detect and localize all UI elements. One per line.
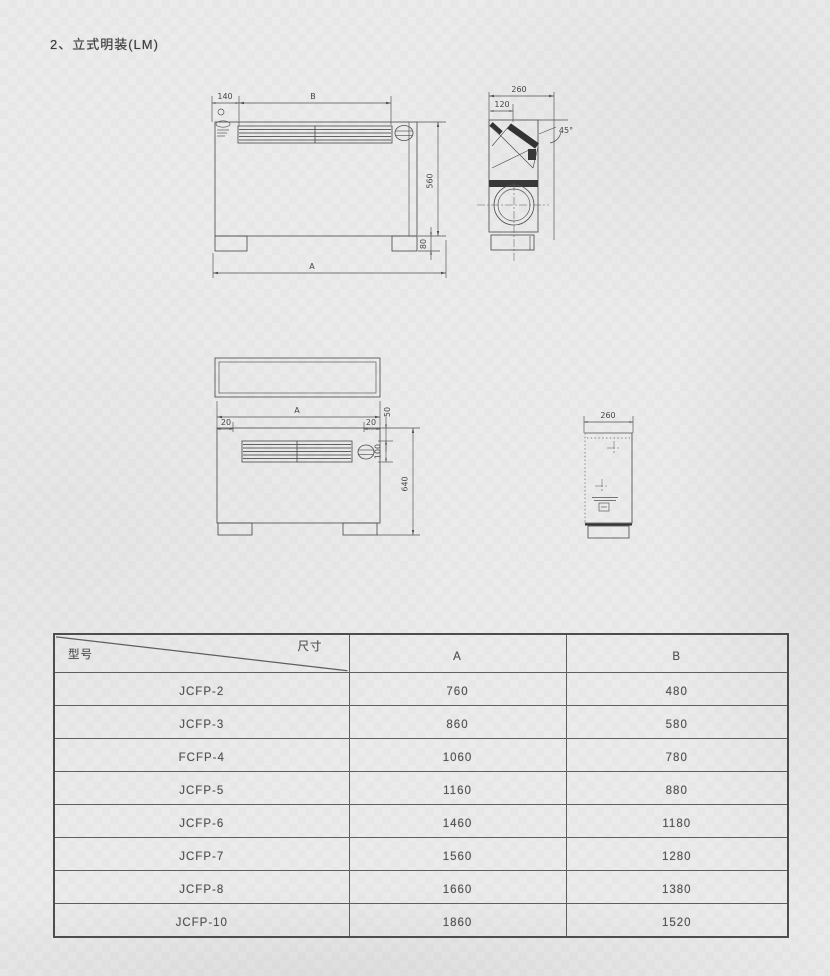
model-cell: JCFP-2 bbox=[54, 673, 349, 706]
dim-b-cell: 880 bbox=[566, 771, 788, 804]
air-outlet-grille bbox=[238, 126, 392, 143]
heat-exchanger-coil bbox=[491, 124, 538, 168]
header-col-b: B bbox=[566, 634, 788, 673]
dim-bottom: A bbox=[213, 240, 446, 278]
dim-width-lower: A 20 20 bbox=[217, 401, 380, 432]
dim-right: 560 80 bbox=[417, 122, 446, 260]
dim-a-cell: 760 bbox=[349, 673, 566, 706]
dim-right-lower: 50 100 640 bbox=[374, 407, 421, 535]
dim-a-cell: 1060 bbox=[349, 738, 566, 771]
side-foot-lower bbox=[588, 526, 629, 538]
table-row: JCFP-2 760 480 bbox=[54, 673, 788, 706]
model-cell: JCFP-3 bbox=[54, 705, 349, 738]
front-view-lower-drawing: A 20 20 bbox=[215, 358, 420, 535]
dim-a-cell: 1660 bbox=[349, 870, 566, 903]
header-col-a: A bbox=[349, 634, 566, 673]
dim-top: 140 B bbox=[212, 92, 391, 126]
dim-b-cell: 480 bbox=[566, 673, 788, 706]
table-row: FCFP-4 1060 780 bbox=[54, 738, 788, 771]
dim-b-cell: 580 bbox=[566, 705, 788, 738]
dim-label-80: 80 bbox=[419, 239, 428, 249]
table-row: JCFP-3 860 580 bbox=[54, 705, 788, 738]
left-foot-lower bbox=[218, 523, 252, 535]
dim-label-B: B bbox=[310, 92, 316, 101]
dim-b-cell: 780 bbox=[566, 738, 788, 771]
table-header-row: 尺寸 型号 A B bbox=[54, 634, 788, 673]
fan-deck bbox=[489, 180, 538, 187]
model-cell: JCFP-5 bbox=[54, 771, 349, 804]
header-model-label: 型号 bbox=[68, 646, 93, 662]
dim-label-20-left: 20 bbox=[221, 418, 231, 427]
dim-label-640: 640 bbox=[401, 476, 410, 491]
dim-label-100: 100 bbox=[374, 444, 383, 459]
table-row: JCFP-5 1160 880 bbox=[54, 771, 788, 804]
nameplate-detail bbox=[216, 109, 230, 136]
header-model-size-cell: 尺寸 型号 bbox=[54, 634, 349, 673]
table-row: JCFP-8 1660 1380 bbox=[54, 870, 788, 903]
dim-b-cell: 1520 bbox=[566, 903, 788, 937]
left-foot bbox=[215, 236, 247, 251]
control-knob-lower bbox=[358, 445, 374, 459]
side-foot bbox=[491, 235, 534, 250]
pipe-connection-marks bbox=[592, 441, 621, 511]
dim-label-A2: A bbox=[294, 406, 300, 415]
dim-label-260: 260 bbox=[511, 85, 526, 94]
header-size-label: 尺寸 bbox=[298, 638, 323, 654]
model-cell: FCFP-4 bbox=[54, 738, 349, 771]
plan-view bbox=[215, 358, 380, 397]
dim-a-cell: 1460 bbox=[349, 804, 566, 837]
model-cell: JCFP-6 bbox=[54, 804, 349, 837]
dim-side-lower: 260 bbox=[584, 411, 633, 433]
right-foot bbox=[392, 236, 417, 251]
dim-label-560: 560 bbox=[426, 173, 435, 188]
unit-body-lower bbox=[217, 428, 380, 523]
dim-side-top: 260 120 45° bbox=[489, 85, 573, 240]
model-cell: JCFP-8 bbox=[54, 870, 349, 903]
model-cell: JCFP-7 bbox=[54, 837, 349, 870]
dim-b-cell: 1180 bbox=[566, 804, 788, 837]
side-view-drawing: 260 120 45° bbox=[477, 85, 573, 262]
right-foot-lower bbox=[343, 523, 377, 535]
unit-body bbox=[215, 122, 417, 236]
dim-label-20-right: 20 bbox=[366, 418, 376, 427]
dim-a-cell: 1160 bbox=[349, 771, 566, 804]
front-view-drawing: 140 B 560 80 A bbox=[212, 92, 446, 278]
dim-label-120: 120 bbox=[494, 100, 509, 109]
dim-a-cell: 860 bbox=[349, 705, 566, 738]
dimensions-table: 尺寸 型号 A B JCFP-2 760 480 JCFP-3 860 580 … bbox=[53, 633, 789, 938]
dim-a-cell: 1860 bbox=[349, 903, 566, 937]
side-view-lower-drawing: 260 bbox=[584, 411, 633, 538]
table-row: JCFP-7 1560 1280 bbox=[54, 837, 788, 870]
dim-label-50: 50 bbox=[383, 407, 392, 417]
dim-label-45: 45° bbox=[559, 126, 573, 135]
catalog-page: 2、立式明装(LM) bbox=[0, 0, 830, 976]
table-row: JCFP-10 1860 1520 bbox=[54, 903, 788, 937]
technical-drawings: 140 B 560 80 A bbox=[0, 0, 830, 600]
dim-b-cell: 1280 bbox=[566, 837, 788, 870]
table-row: JCFP-6 1460 1180 bbox=[54, 804, 788, 837]
dim-a-cell: 1560 bbox=[349, 837, 566, 870]
dim-label-140: 140 bbox=[217, 92, 232, 101]
air-grille-lower bbox=[242, 441, 352, 462]
model-cell: JCFP-10 bbox=[54, 903, 349, 937]
dim-label-A: A bbox=[309, 262, 315, 271]
dim-label-260-lower: 260 bbox=[600, 411, 615, 420]
control-knob bbox=[395, 126, 413, 141]
dim-b-cell: 1380 bbox=[566, 870, 788, 903]
